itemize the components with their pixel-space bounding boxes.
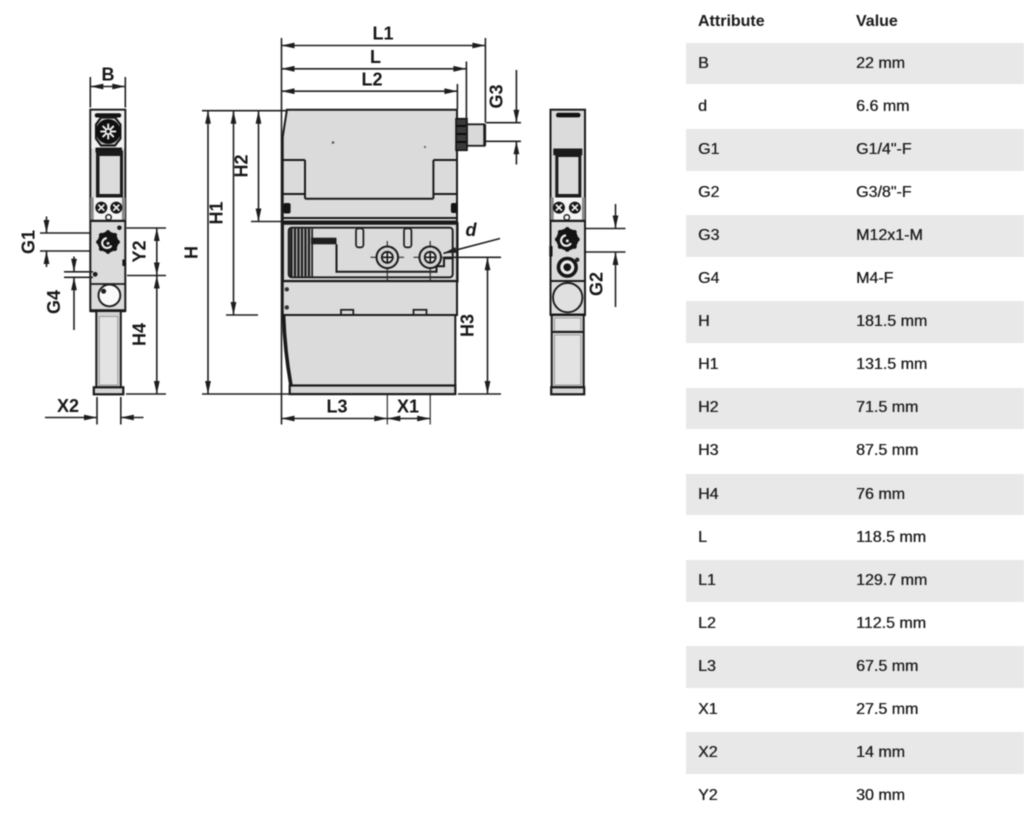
svg-text:H: H xyxy=(182,246,202,259)
svg-text:B: B xyxy=(102,65,115,85)
svg-text:G1: G1 xyxy=(19,230,39,254)
svg-text:L1: L1 xyxy=(372,24,393,44)
svg-text:H1: H1 xyxy=(207,201,227,224)
svg-text:G3: G3 xyxy=(487,84,507,108)
svg-text:d: d xyxy=(466,220,478,240)
svg-text:H3: H3 xyxy=(458,314,478,337)
svg-text:H2: H2 xyxy=(232,154,252,177)
svg-text:H4: H4 xyxy=(130,323,150,346)
svg-text:L2: L2 xyxy=(361,70,382,90)
svg-text:X1: X1 xyxy=(397,397,419,417)
svg-text:Y2: Y2 xyxy=(130,240,150,262)
svg-text:G4: G4 xyxy=(44,290,64,314)
svg-text:G2: G2 xyxy=(587,272,607,296)
svg-text:X2: X2 xyxy=(57,396,79,416)
svg-text:L3: L3 xyxy=(326,397,347,417)
svg-text:L: L xyxy=(370,47,381,67)
